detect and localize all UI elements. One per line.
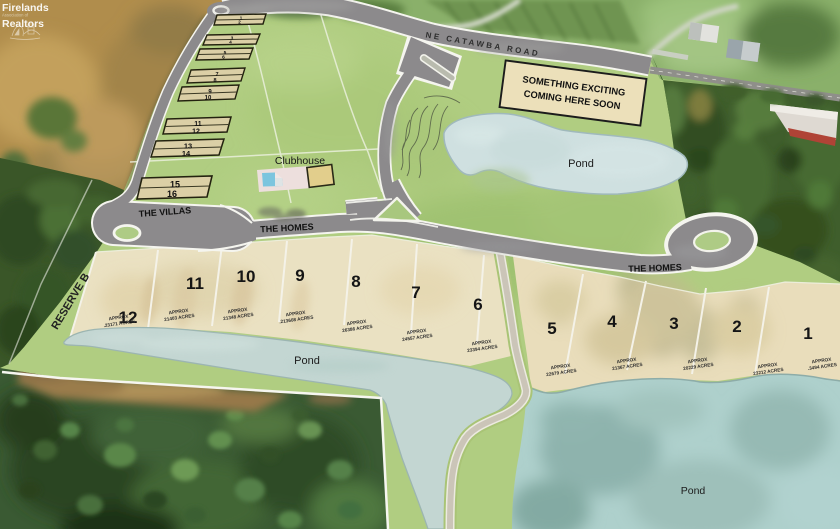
svg-text:Clubhouse: Clubhouse xyxy=(275,155,325,167)
svg-text:4: 4 xyxy=(607,312,617,331)
svg-text:Pond: Pond xyxy=(681,485,706,497)
svg-text:10: 10 xyxy=(205,96,212,102)
svg-text:11: 11 xyxy=(194,121,202,128)
svg-text:Pond: Pond xyxy=(294,355,320,367)
svg-text:3: 3 xyxy=(669,314,678,333)
svg-text:15: 15 xyxy=(170,180,180,190)
svg-text:10: 10 xyxy=(237,267,256,286)
svg-text:Realtors: Realtors xyxy=(2,18,44,30)
svg-text:7: 7 xyxy=(411,283,420,302)
svg-text:9: 9 xyxy=(295,266,304,285)
svg-text:11: 11 xyxy=(186,274,204,293)
svg-text:Pond: Pond xyxy=(568,158,594,170)
svg-text:5: 5 xyxy=(547,319,556,338)
svg-text:16: 16 xyxy=(167,189,177,199)
svg-text:THE HOMES: THE HOMES xyxy=(628,262,682,274)
svg-text:12: 12 xyxy=(192,128,200,135)
svg-text:6: 6 xyxy=(473,295,482,314)
svg-text:8: 8 xyxy=(351,272,360,291)
svg-text:8: 8 xyxy=(213,78,216,84)
svg-text:6: 6 xyxy=(222,55,225,61)
svg-text:Association of: Association of xyxy=(2,13,29,18)
svg-text:2: 2 xyxy=(732,317,741,336)
svg-text:1: 1 xyxy=(803,324,812,343)
svg-text:14: 14 xyxy=(182,149,191,158)
